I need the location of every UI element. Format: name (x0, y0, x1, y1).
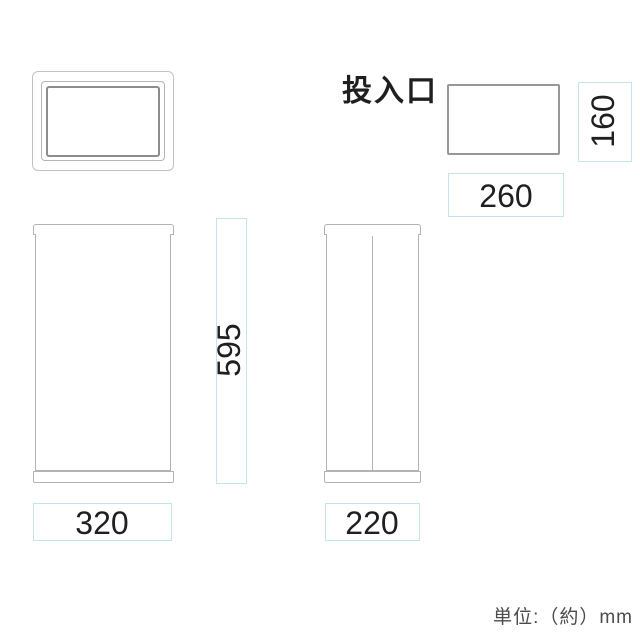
top-view-opening-outline (46, 86, 160, 157)
slot-opening-outline (447, 84, 560, 155)
side-view-seam-line (372, 236, 373, 470)
dimension-value-slot-width: 260 (479, 180, 532, 212)
front-view-base (33, 471, 174, 483)
unit-note: 単位:（約）mm (493, 602, 633, 629)
dimension-value-slot-height: 160 (587, 94, 619, 147)
slot-opening-label: 投入口 (342, 66, 438, 110)
dimension-value-depth: 220 (345, 507, 398, 539)
side-view-base (324, 471, 421, 483)
front-view-body (35, 234, 171, 471)
dimension-value-width: 320 (75, 507, 128, 539)
dimension-value-height: 595 (213, 323, 245, 376)
dimension-diagram: 投入口 160 260 595 320 220 単位:（約）mm (0, 0, 640, 640)
